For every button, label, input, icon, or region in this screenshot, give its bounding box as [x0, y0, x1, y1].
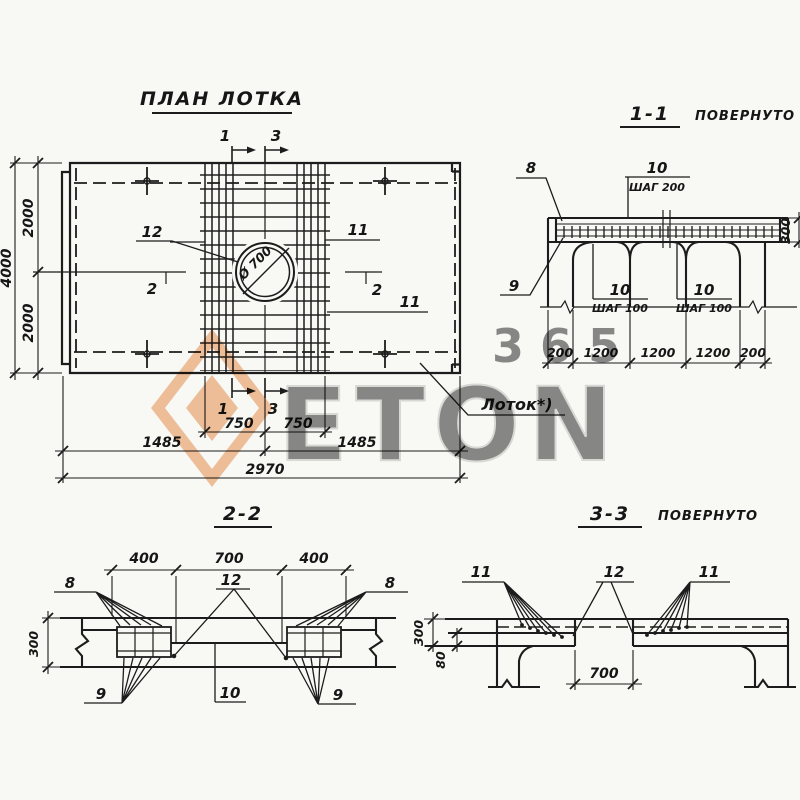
sec22-callout-9-r: 9	[333, 686, 343, 704]
section-3-3: 3-3 ПОВЕРНУТО 11 12 11 300 80 700	[411, 503, 796, 690]
plan-callout-12: 12	[142, 223, 163, 241]
watermark-letters: ETON	[278, 366, 621, 485]
bar-dot	[677, 626, 681, 630]
bar-dot	[520, 623, 524, 627]
bar-dot	[645, 633, 649, 637]
sec11-dim-1200-b: 1200	[641, 345, 676, 360]
sec11-step100a-text: ШАГ 100	[592, 302, 648, 315]
sec22-outline	[60, 618, 396, 667]
mark-3-top: 3	[271, 127, 281, 145]
sec22-dim-700: 700	[214, 551, 243, 567]
sec11-ground-line	[540, 301, 797, 313]
bar-dot	[653, 631, 657, 635]
plan-callout-11-top: 11	[348, 221, 369, 239]
bar-dot	[528, 626, 532, 630]
bar-dot	[669, 628, 673, 632]
sec11-callout-9: 9	[509, 277, 519, 295]
sec22-bar-dot	[284, 656, 289, 661]
sec33-callout-12: 12	[604, 563, 625, 581]
sec33-rotated-note: ПОВЕРНУТО	[658, 509, 758, 524]
sec22-callout-9-l: 9	[96, 685, 106, 703]
bar-dot	[685, 625, 689, 629]
bar-dot	[536, 629, 540, 633]
bar-dot	[661, 629, 665, 633]
mark-2-left: 2	[147, 280, 157, 298]
sec33-title: 3-3	[590, 503, 630, 525]
sec22-callout-8-l: 8	[65, 574, 75, 592]
technical-drawing: ПЛАН ЛОТКА 1 3 1 3 2 2 12 11 11 Ø 700 Ло…	[0, 0, 800, 800]
sec22-callout-12: 12	[221, 571, 242, 589]
sec11-step200-num: 10	[647, 159, 668, 177]
blueprint-page: ПЛАН ЛОТКА 1 3 1 3 2 2 12 11 11 Ø 700 Ло…	[0, 0, 800, 800]
section-2-2: 2-2 400 700 400 300 8 8 12 9 9 10	[26, 503, 408, 704]
sec11-step100a-num: 10	[610, 281, 631, 299]
sec22-embed-left	[117, 627, 171, 657]
sec11-title: 1-1	[630, 103, 670, 125]
sec22-dim-lines	[42, 570, 354, 674]
sec33-callout-leaders	[462, 582, 730, 637]
sec22-dim-400-l: 400	[128, 551, 158, 567]
dim-2000-bottom: 2000	[21, 303, 37, 342]
sec22-bar-dot	[172, 654, 177, 659]
sec11-dim-300: 300	[778, 218, 793, 244]
sec22-embed-right	[287, 627, 341, 657]
dim-2000-top: 2000	[21, 198, 37, 237]
sec22-callout-8-r: 8	[385, 574, 395, 592]
sec33-dim-700: 700	[589, 666, 618, 682]
sec11-rotated-note: ПОВЕРНУТО	[695, 109, 795, 124]
sec33-callout-11-l: 11	[471, 563, 492, 581]
bar-dot	[552, 633, 556, 637]
sec11-callout-8: 8	[526, 159, 536, 177]
sec33-dim-80: 80	[433, 651, 448, 669]
bar-dot	[544, 631, 548, 635]
mark-1-top: 1	[220, 127, 230, 145]
sec11-step200-text: ШАГ 200	[629, 181, 685, 194]
sec22-dim-400-r: 400	[298, 551, 328, 567]
sec22-title: 2-2	[223, 503, 263, 525]
dim-4000: 4000	[0, 248, 15, 288]
sec11-step100b-text: ШАГ 100	[676, 302, 732, 315]
sec11-step100b-num: 10	[694, 281, 715, 299]
mark-2-right: 2	[372, 281, 382, 299]
sec33-callout-11-r: 11	[699, 563, 720, 581]
plan-title: ПЛАН ЛОТКА	[140, 88, 304, 110]
watermark-digits: 365	[492, 319, 636, 373]
sec11-dim-200-r: 200	[740, 345, 766, 360]
plan-callout-11-bottom: 11	[400, 293, 421, 311]
sec11-dim-1200-c: 1200	[696, 345, 731, 360]
bar-dot	[560, 635, 564, 639]
sec22-dim-300: 300	[26, 631, 41, 657]
sec33-dim-300: 300	[411, 620, 426, 646]
sec22-callout-10: 10	[220, 684, 241, 702]
